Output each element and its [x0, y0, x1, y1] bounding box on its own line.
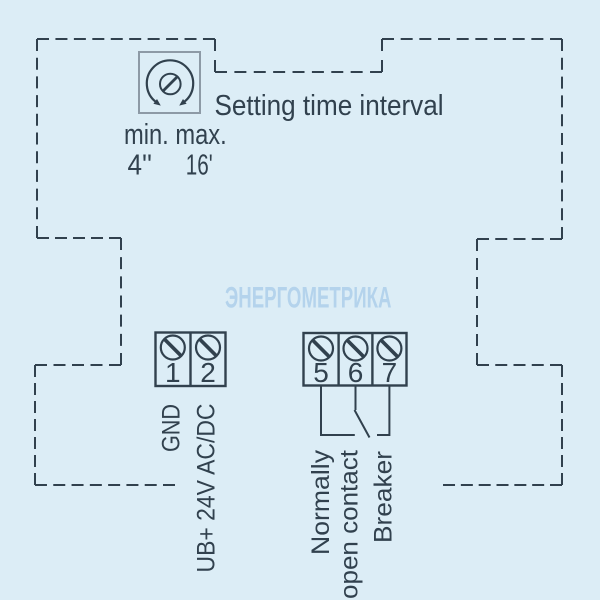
svg-text:UB+ 24V AC/DC: UB+ 24V AC/DC [194, 404, 221, 573]
svg-text:4'': 4'' [128, 150, 153, 182]
svg-text:Normally: Normally [308, 449, 335, 555]
svg-text:6: 6 [348, 357, 364, 388]
svg-text:2: 2 [200, 357, 216, 388]
svg-text:GND: GND [158, 404, 185, 452]
svg-text:16': 16' [186, 150, 213, 182]
svg-text:1: 1 [165, 357, 181, 388]
svg-text:7: 7 [382, 357, 398, 388]
svg-text:min. max.: min. max. [124, 119, 227, 151]
svg-text:ЭНЕРГОМЕТРИКА: ЭНЕРГОМЕТРИКА [225, 282, 392, 315]
svg-text:open contact: open contact [337, 450, 364, 599]
svg-text:Setting time interval: Setting time interval [215, 90, 444, 122]
svg-text:Breaker: Breaker [371, 451, 398, 543]
svg-text:5: 5 [313, 357, 329, 388]
